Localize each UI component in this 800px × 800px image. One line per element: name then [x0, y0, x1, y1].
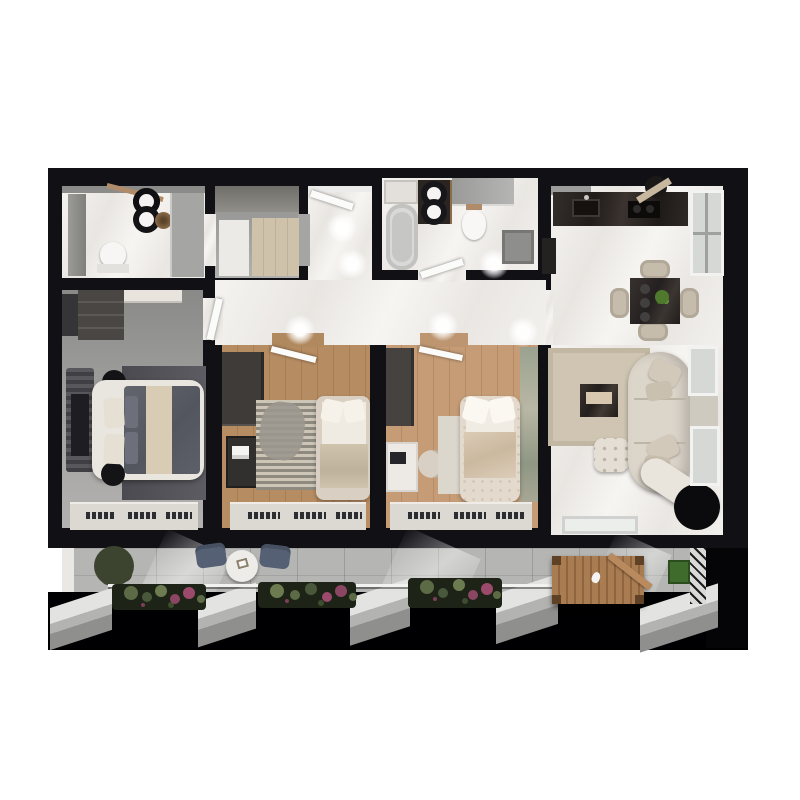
floor-plan-canvas	[0, 0, 800, 800]
bedroom-2-radiator-3	[334, 512, 362, 519]
hallway-floor	[215, 280, 546, 345]
master-runner	[146, 386, 172, 474]
closet-wardrobe	[252, 218, 299, 276]
living-window-pier	[690, 396, 718, 426]
living-window-2	[690, 426, 720, 486]
master-pillow-3	[125, 396, 138, 428]
dining-chair-right	[680, 288, 699, 318]
vessel-sink-4-bowl	[427, 205, 441, 219]
dining-table	[630, 278, 680, 324]
bedroom-2-blanket	[320, 444, 368, 488]
black-side-table	[674, 484, 720, 530]
ottoman	[594, 438, 629, 472]
toilet-1-tank	[97, 264, 129, 273]
balcony-tree	[94, 546, 134, 586]
bathtub-basin	[392, 212, 412, 262]
bedroom-2-pillow-2	[342, 399, 365, 424]
dining-plate-2	[640, 298, 650, 308]
table-plant	[655, 290, 669, 304]
master-shelf-ledge	[124, 290, 182, 303]
outdoor-chair-1	[195, 542, 228, 569]
cooktop-burner-2	[646, 205, 654, 213]
flower-planter-1-blooms	[124, 586, 138, 600]
kitchen-faucet	[584, 195, 589, 200]
bedroom-3-laptop	[390, 452, 406, 464]
dining-plate-3	[640, 312, 650, 322]
bedroom-3-pillow-2	[488, 396, 516, 424]
bedroom-2-radiator-1	[246, 512, 280, 519]
shower-glass-1	[170, 193, 204, 277]
dining-chair-top	[640, 260, 670, 279]
doorway-kitchen	[546, 290, 553, 345]
shower-wall-band	[452, 178, 514, 206]
master-pillow-1	[103, 397, 125, 428]
closet-rug	[219, 220, 249, 276]
toilet-2-bowl	[462, 210, 486, 240]
bedroom-3-accent-wall	[520, 347, 538, 502]
headboard-inset	[71, 394, 89, 456]
master-wardrobe	[78, 290, 124, 340]
doorway-bathroom-1	[204, 214, 216, 266]
green-planter-box	[668, 560, 690, 584]
master-dresser	[62, 294, 78, 336]
outdoor-chair-2	[259, 543, 292, 569]
balcony-railing	[690, 548, 706, 604]
bathroom-1-cabinet	[68, 194, 86, 276]
ceiling-light-1	[327, 213, 357, 243]
nightstand-bottom	[101, 462, 125, 486]
bedroom-3-wardrobe	[386, 348, 414, 426]
living-window-1	[688, 346, 718, 396]
flower-planter-2-blooms	[270, 584, 284, 598]
bench-post-1	[552, 556, 561, 565]
vessel-sink-2-bowl	[139, 212, 154, 227]
master-pillow-4	[125, 432, 138, 464]
bench-post-4	[635, 595, 644, 604]
kitchen-window-mullion-2	[693, 232, 721, 235]
ceiling-light-4	[428, 311, 458, 341]
tall-black-cabinet	[542, 238, 556, 274]
master-radiator-2	[126, 512, 158, 519]
master-radiator-3	[164, 512, 192, 519]
closet-wall-band	[215, 186, 299, 212]
balcony-door	[562, 516, 638, 534]
coffee-table-tray	[586, 392, 612, 404]
master-radiator-1	[84, 512, 116, 519]
master-pillow-2	[103, 433, 125, 464]
bedroom-3-desk	[386, 442, 418, 492]
cooktop-burner-1	[633, 205, 641, 213]
ceiling-light-3	[285, 315, 315, 345]
shower-tray	[502, 230, 534, 264]
flower-planter-3-blooms	[420, 580, 434, 594]
bedroom-3-radiator-3	[494, 512, 524, 519]
bedroom-3-radiator-2	[452, 512, 486, 519]
bedroom-2-laptop	[232, 446, 249, 459]
dining-chair-left	[610, 288, 629, 318]
bedroom-3-radiator-1	[406, 512, 440, 519]
ceiling-light-2	[337, 249, 367, 279]
doorway-closet	[298, 214, 310, 266]
ceiling-light-6	[508, 317, 538, 347]
kitchen-sink	[572, 199, 600, 217]
bench-post-3	[552, 595, 561, 604]
dining-chair-bottom	[638, 322, 668, 341]
bench-post-2	[635, 556, 644, 565]
dining-plate-1	[640, 284, 650, 294]
bedroom-3-blanket	[464, 432, 516, 478]
laundry-counter	[384, 180, 418, 204]
bedroom-2-radiator-2	[292, 512, 326, 519]
